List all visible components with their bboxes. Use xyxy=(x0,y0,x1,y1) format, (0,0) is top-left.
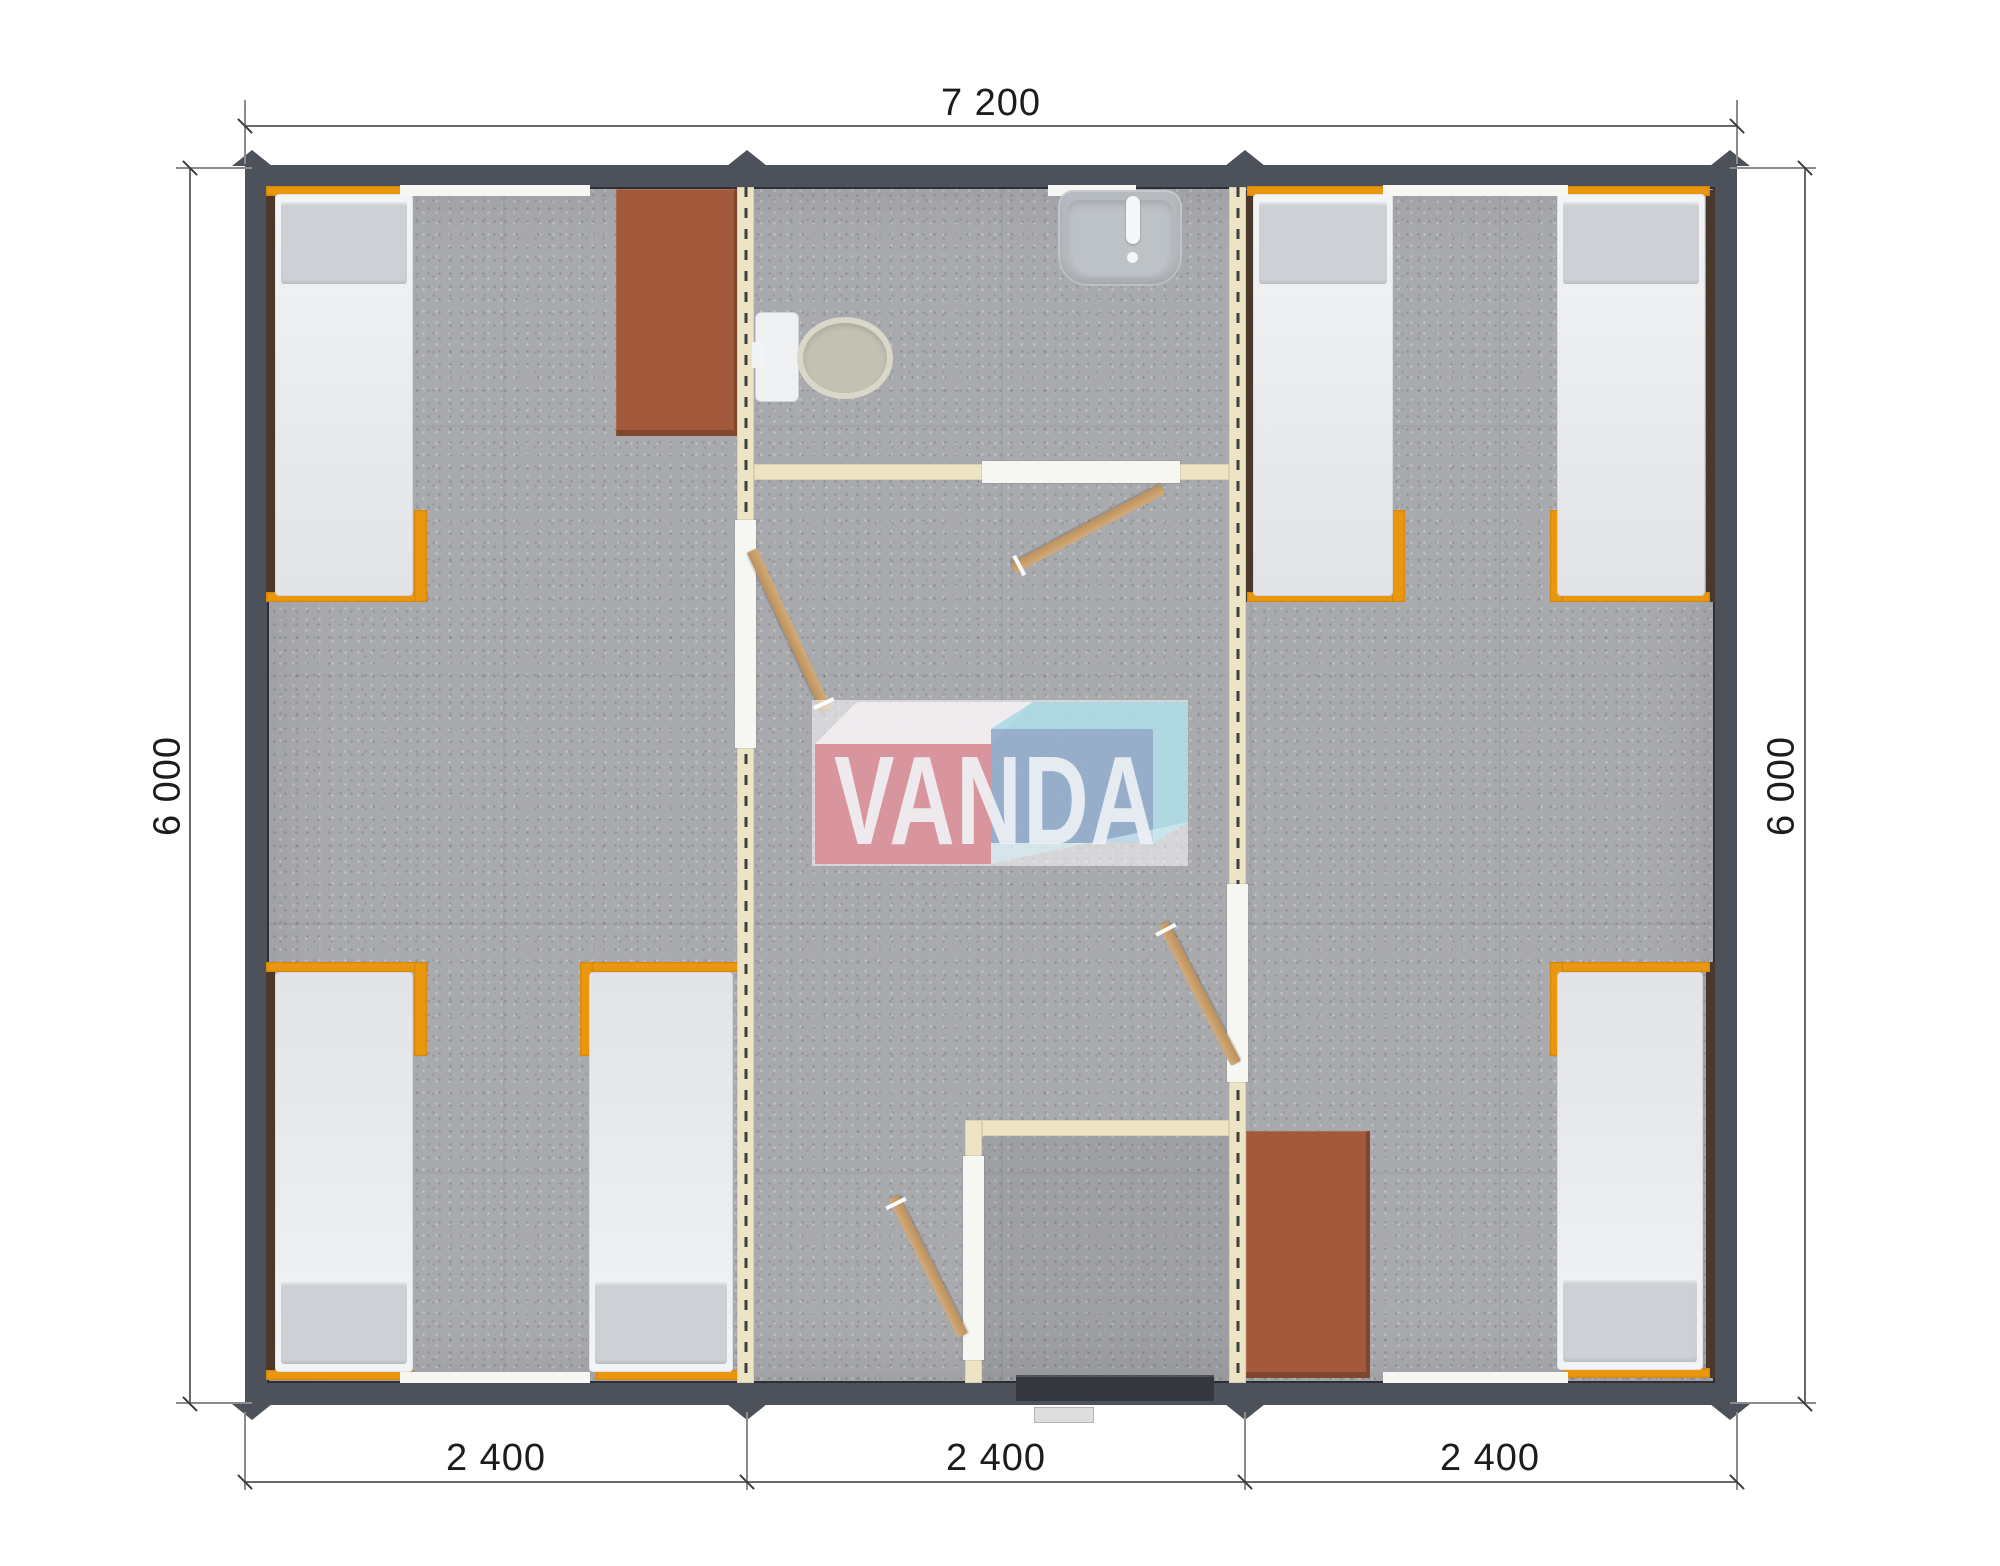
extension-line xyxy=(1244,1412,1246,1490)
dimension-label-module: 2 400 xyxy=(1440,1437,1540,1480)
dimension-label-module: 2 400 xyxy=(946,1437,1046,1480)
floor-plan: VANDA 7 200 2 400 2 400 2 400 6 000 6 00… xyxy=(0,0,2000,1566)
dimension-label-height-left: 6 000 xyxy=(147,736,190,836)
dimension-line-top xyxy=(245,125,1737,127)
dimension-label-height-right: 6 000 xyxy=(1761,736,1804,836)
dimension-line-bottom xyxy=(245,1481,1737,1483)
watermark-text: VANDA xyxy=(834,738,1157,864)
extension-line xyxy=(244,1412,246,1490)
extension-line xyxy=(1736,1412,1738,1490)
dimension-label-width: 7 200 xyxy=(941,82,1041,125)
extension-line xyxy=(1736,100,1738,164)
watermark-logo: VANDA xyxy=(0,0,2000,1566)
dimension-label-module: 2 400 xyxy=(446,1437,546,1480)
extension-line xyxy=(746,1412,748,1490)
extension-line xyxy=(244,100,246,164)
dimension-line-right xyxy=(1804,168,1806,1404)
